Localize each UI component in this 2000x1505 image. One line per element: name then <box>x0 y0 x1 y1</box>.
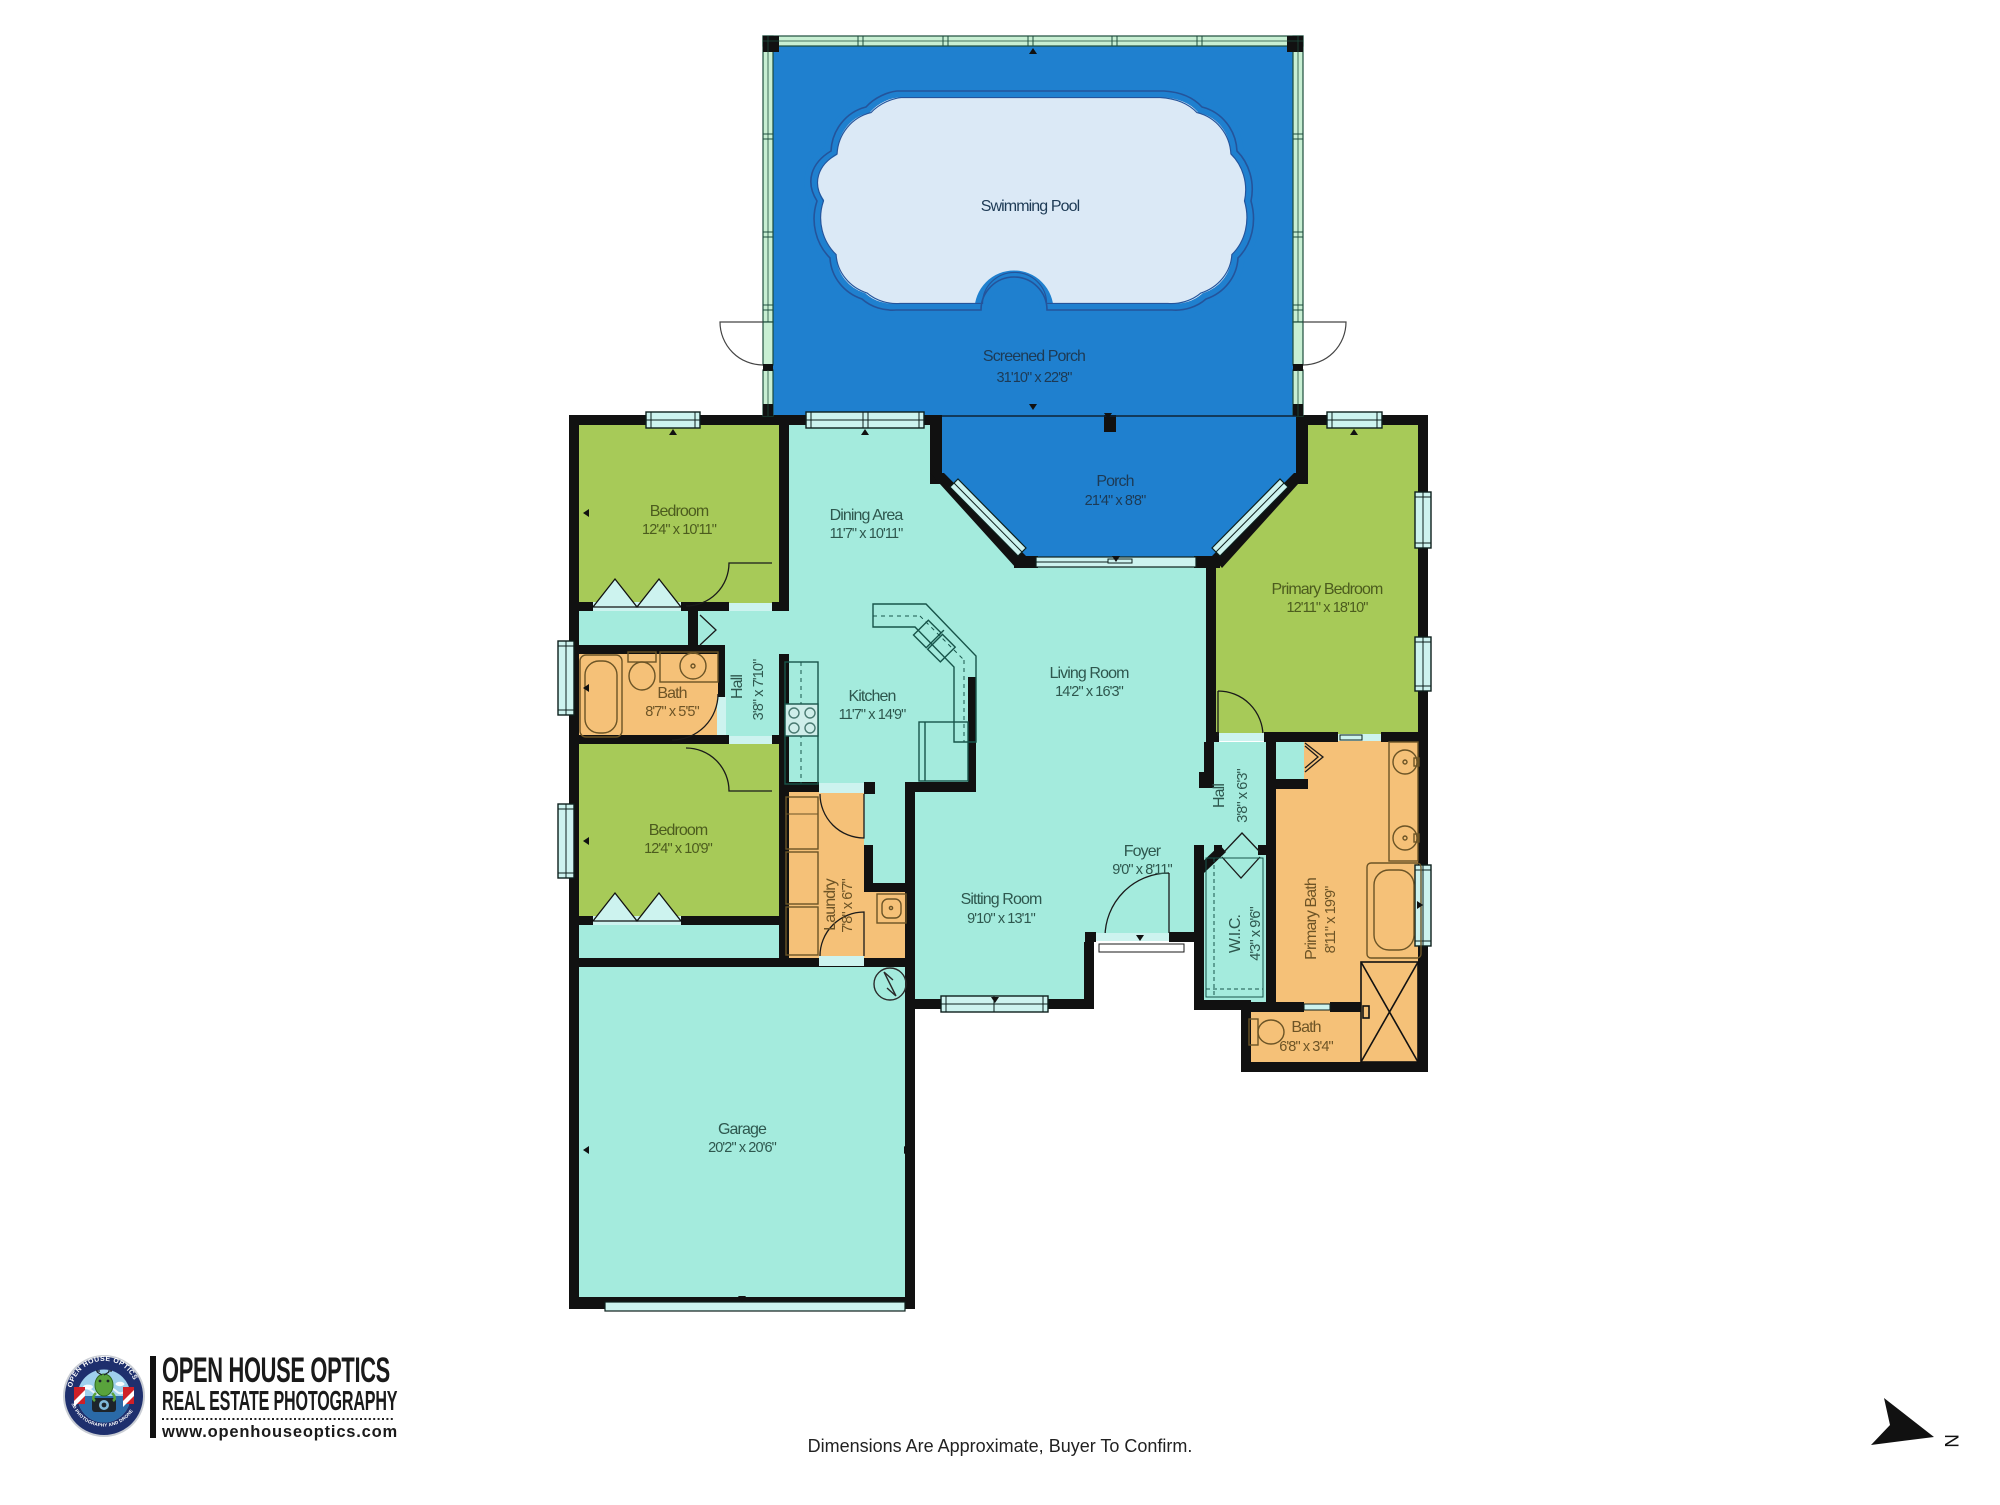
svg-text:4'3" x 9'6": 4'3" x 9'6" <box>1248 907 1264 961</box>
svg-text:6'8" x 3'4": 6'8" x 3'4" <box>1279 1039 1333 1055</box>
svg-text:Living Room: Living Room <box>1049 665 1129 682</box>
svg-text:11'7" x 10'11": 11'7" x 10'11" <box>830 526 904 542</box>
svg-text:W.I.C.: W.I.C. <box>1227 915 1244 953</box>
svg-text:12'4" x 10'9": 12'4" x 10'9" <box>644 841 713 857</box>
svg-text:21'4" x 8'8": 21'4" x 8'8" <box>1085 493 1146 509</box>
svg-text:Hall: Hall <box>729 675 746 699</box>
svg-text:Bath: Bath <box>1291 1019 1320 1036</box>
svg-text:Swimming Pool: Swimming Pool <box>981 198 1080 215</box>
svg-text:3'8" x 7'10": 3'8" x 7'10" <box>751 659 767 720</box>
svg-text:9'0" x 8'11": 9'0" x 8'11" <box>1112 862 1172 878</box>
svg-text:Dimensions Are Approximate, Bu: Dimensions Are Approximate, Buyer To Con… <box>808 1436 1193 1456</box>
svg-text:REAL ESTATE PHOTOGRAPHY: REAL ESTATE PHOTOGRAPHY <box>162 1384 397 1416</box>
svg-text:Hall: Hall <box>1211 784 1228 808</box>
svg-text:31'10" x 22'8": 31'10" x 22'8" <box>997 370 1073 386</box>
svg-text:Primary Bedroom: Primary Bedroom <box>1272 581 1384 598</box>
svg-text:9'10" x 13'1": 9'10" x 13'1" <box>967 911 1036 927</box>
svg-text:Kitchen: Kitchen <box>848 688 895 705</box>
svg-text:3'8" x 6'3": 3'8" x 6'3" <box>1235 769 1251 823</box>
svg-text:11'7" x 14'9": 11'7" x 14'9" <box>839 707 907 723</box>
svg-text:7'8" x 6'7": 7'8" x 6'7" <box>840 879 856 933</box>
svg-text:12'11" x 18'10": 12'11" x 18'10" <box>1286 600 1368 616</box>
svg-text:Porch: Porch <box>1096 473 1133 490</box>
svg-text:Primary Bath: Primary Bath <box>1303 878 1320 960</box>
svg-text:Laundry: Laundry <box>822 878 839 930</box>
svg-text:20'2" x 20'6": 20'2" x 20'6" <box>708 1140 777 1156</box>
svg-text:Bath: Bath <box>657 685 686 702</box>
svg-text:Bedroom: Bedroom <box>650 503 709 520</box>
svg-text:Bedroom: Bedroom <box>649 822 708 839</box>
svg-text:14'2" x 16'3": 14'2" x 16'3" <box>1055 684 1124 700</box>
svg-text:www.openhouseoptics.com: www.openhouseoptics.com <box>161 1423 398 1441</box>
svg-text:Foyer: Foyer <box>1124 843 1162 860</box>
svg-text:Garage: Garage <box>718 1121 767 1138</box>
svg-text:8'7" x 5'5": 8'7" x 5'5" <box>645 704 699 720</box>
svg-text:8'11" x 19'9": 8'11" x 19'9" <box>1323 886 1339 954</box>
svg-text:12'4" x 10'11": 12'4" x 10'11" <box>642 522 717 538</box>
svg-text:N: N <box>1940 1434 1961 1448</box>
svg-text:Dining Area: Dining Area <box>830 507 904 524</box>
svg-text:Sitting Room: Sitting Room <box>961 891 1042 908</box>
svg-text:Screened Porch: Screened Porch <box>983 348 1085 365</box>
